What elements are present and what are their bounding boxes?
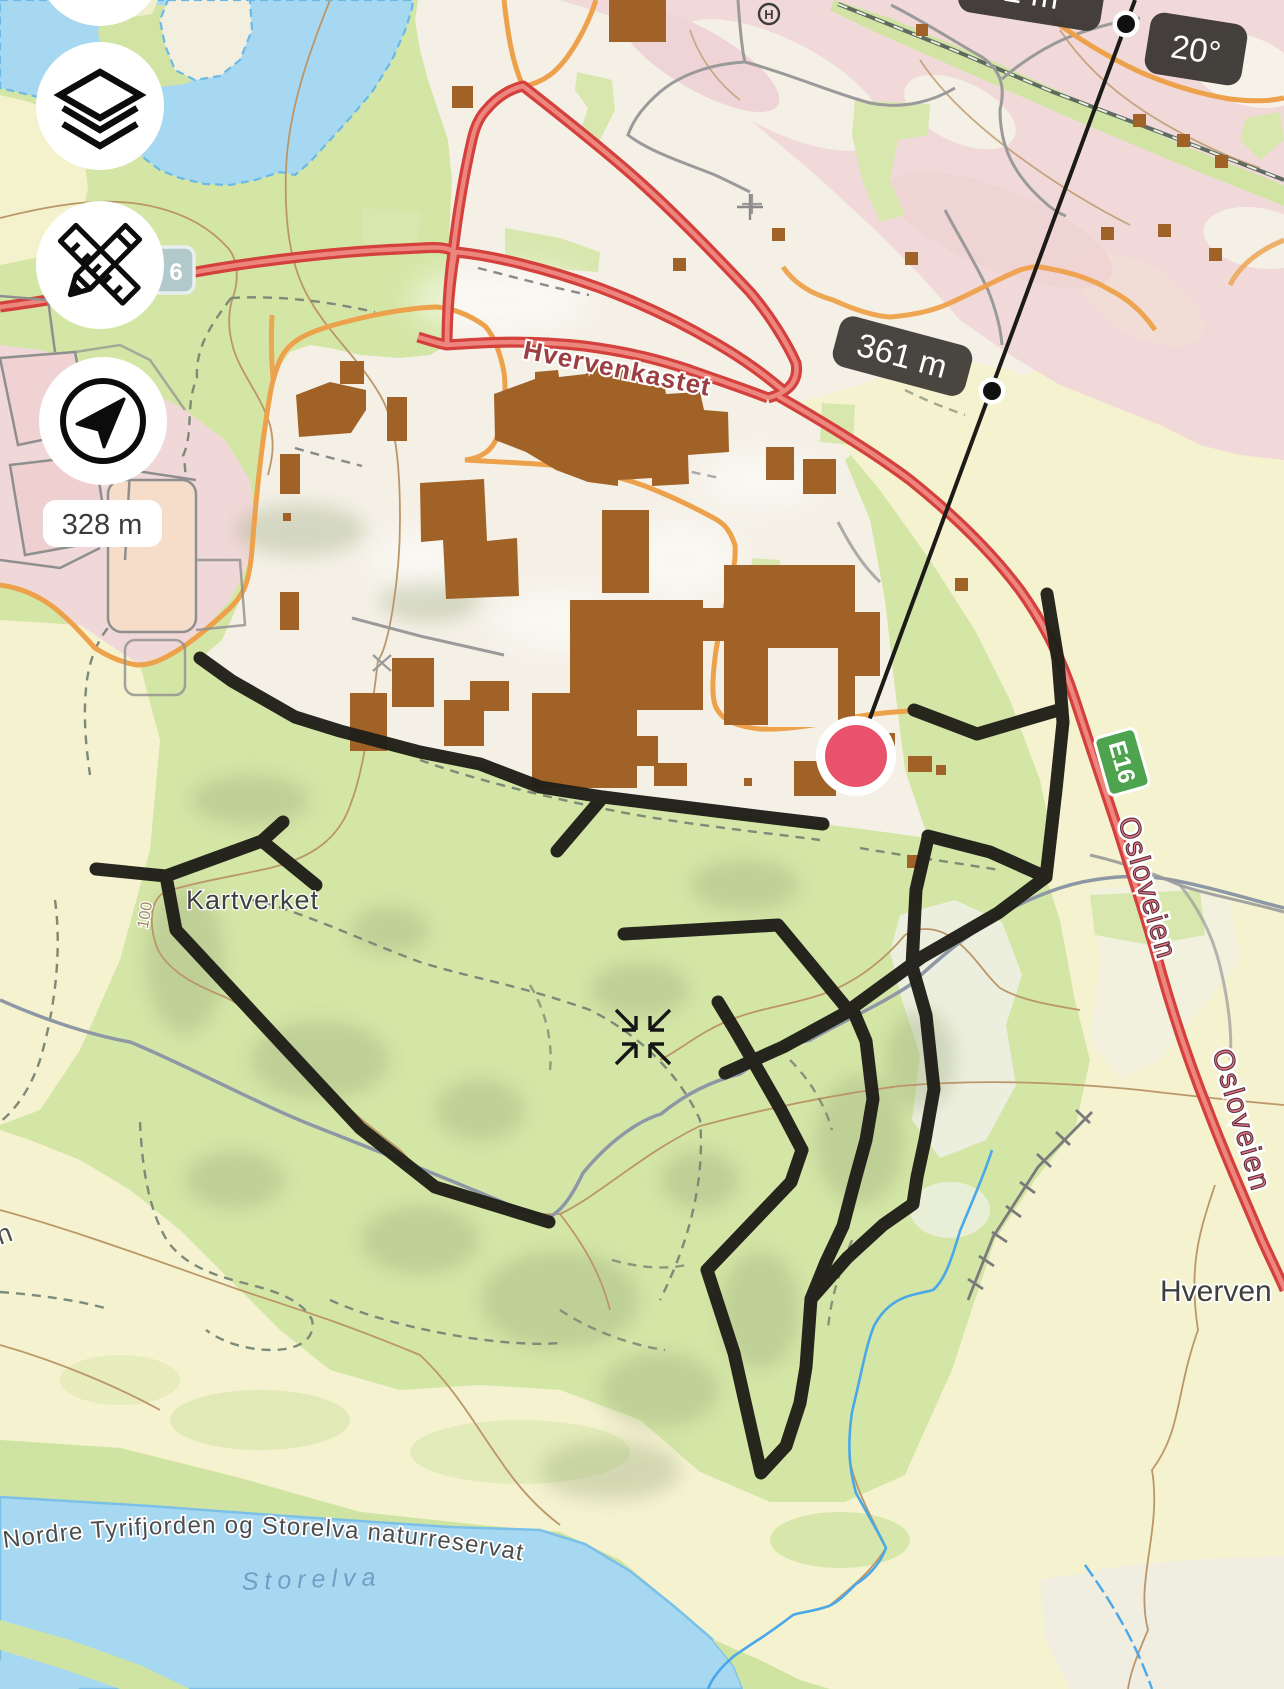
svg-text:328 m: 328 m: [62, 509, 143, 541]
svg-text:Storelva: Storelva: [241, 1563, 382, 1596]
svg-text:Kartverket: Kartverket: [186, 885, 319, 915]
svg-text:H: H: [764, 7, 773, 22]
svg-text:20°: 20°: [1168, 27, 1223, 71]
svg-text:Hverven: Hverven: [1160, 1275, 1272, 1308]
svg-text:6: 6: [169, 259, 182, 286]
